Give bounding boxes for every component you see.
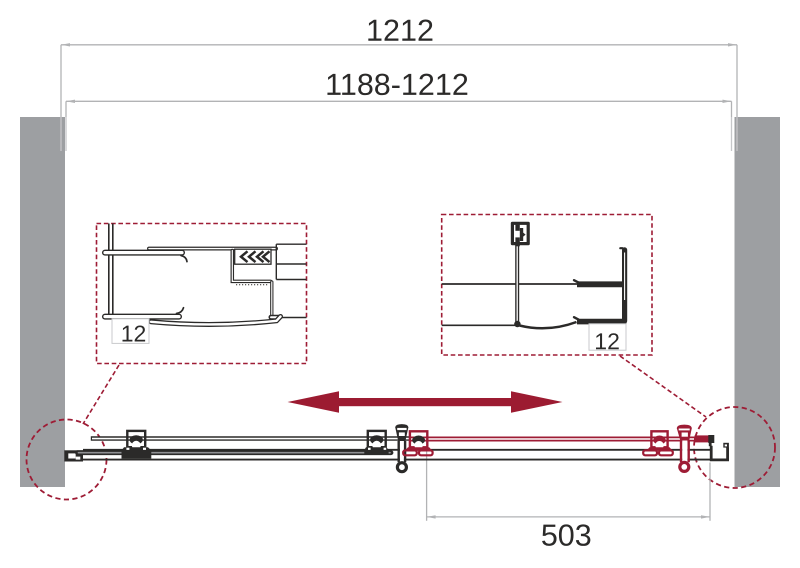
svg-text:12: 12 <box>121 320 147 346</box>
svg-text:503: 503 <box>541 519 592 553</box>
svg-text:1188-1212: 1188-1212 <box>325 68 469 102</box>
svg-text:12: 12 <box>594 328 620 354</box>
svg-text:1212: 1212 <box>366 14 434 48</box>
